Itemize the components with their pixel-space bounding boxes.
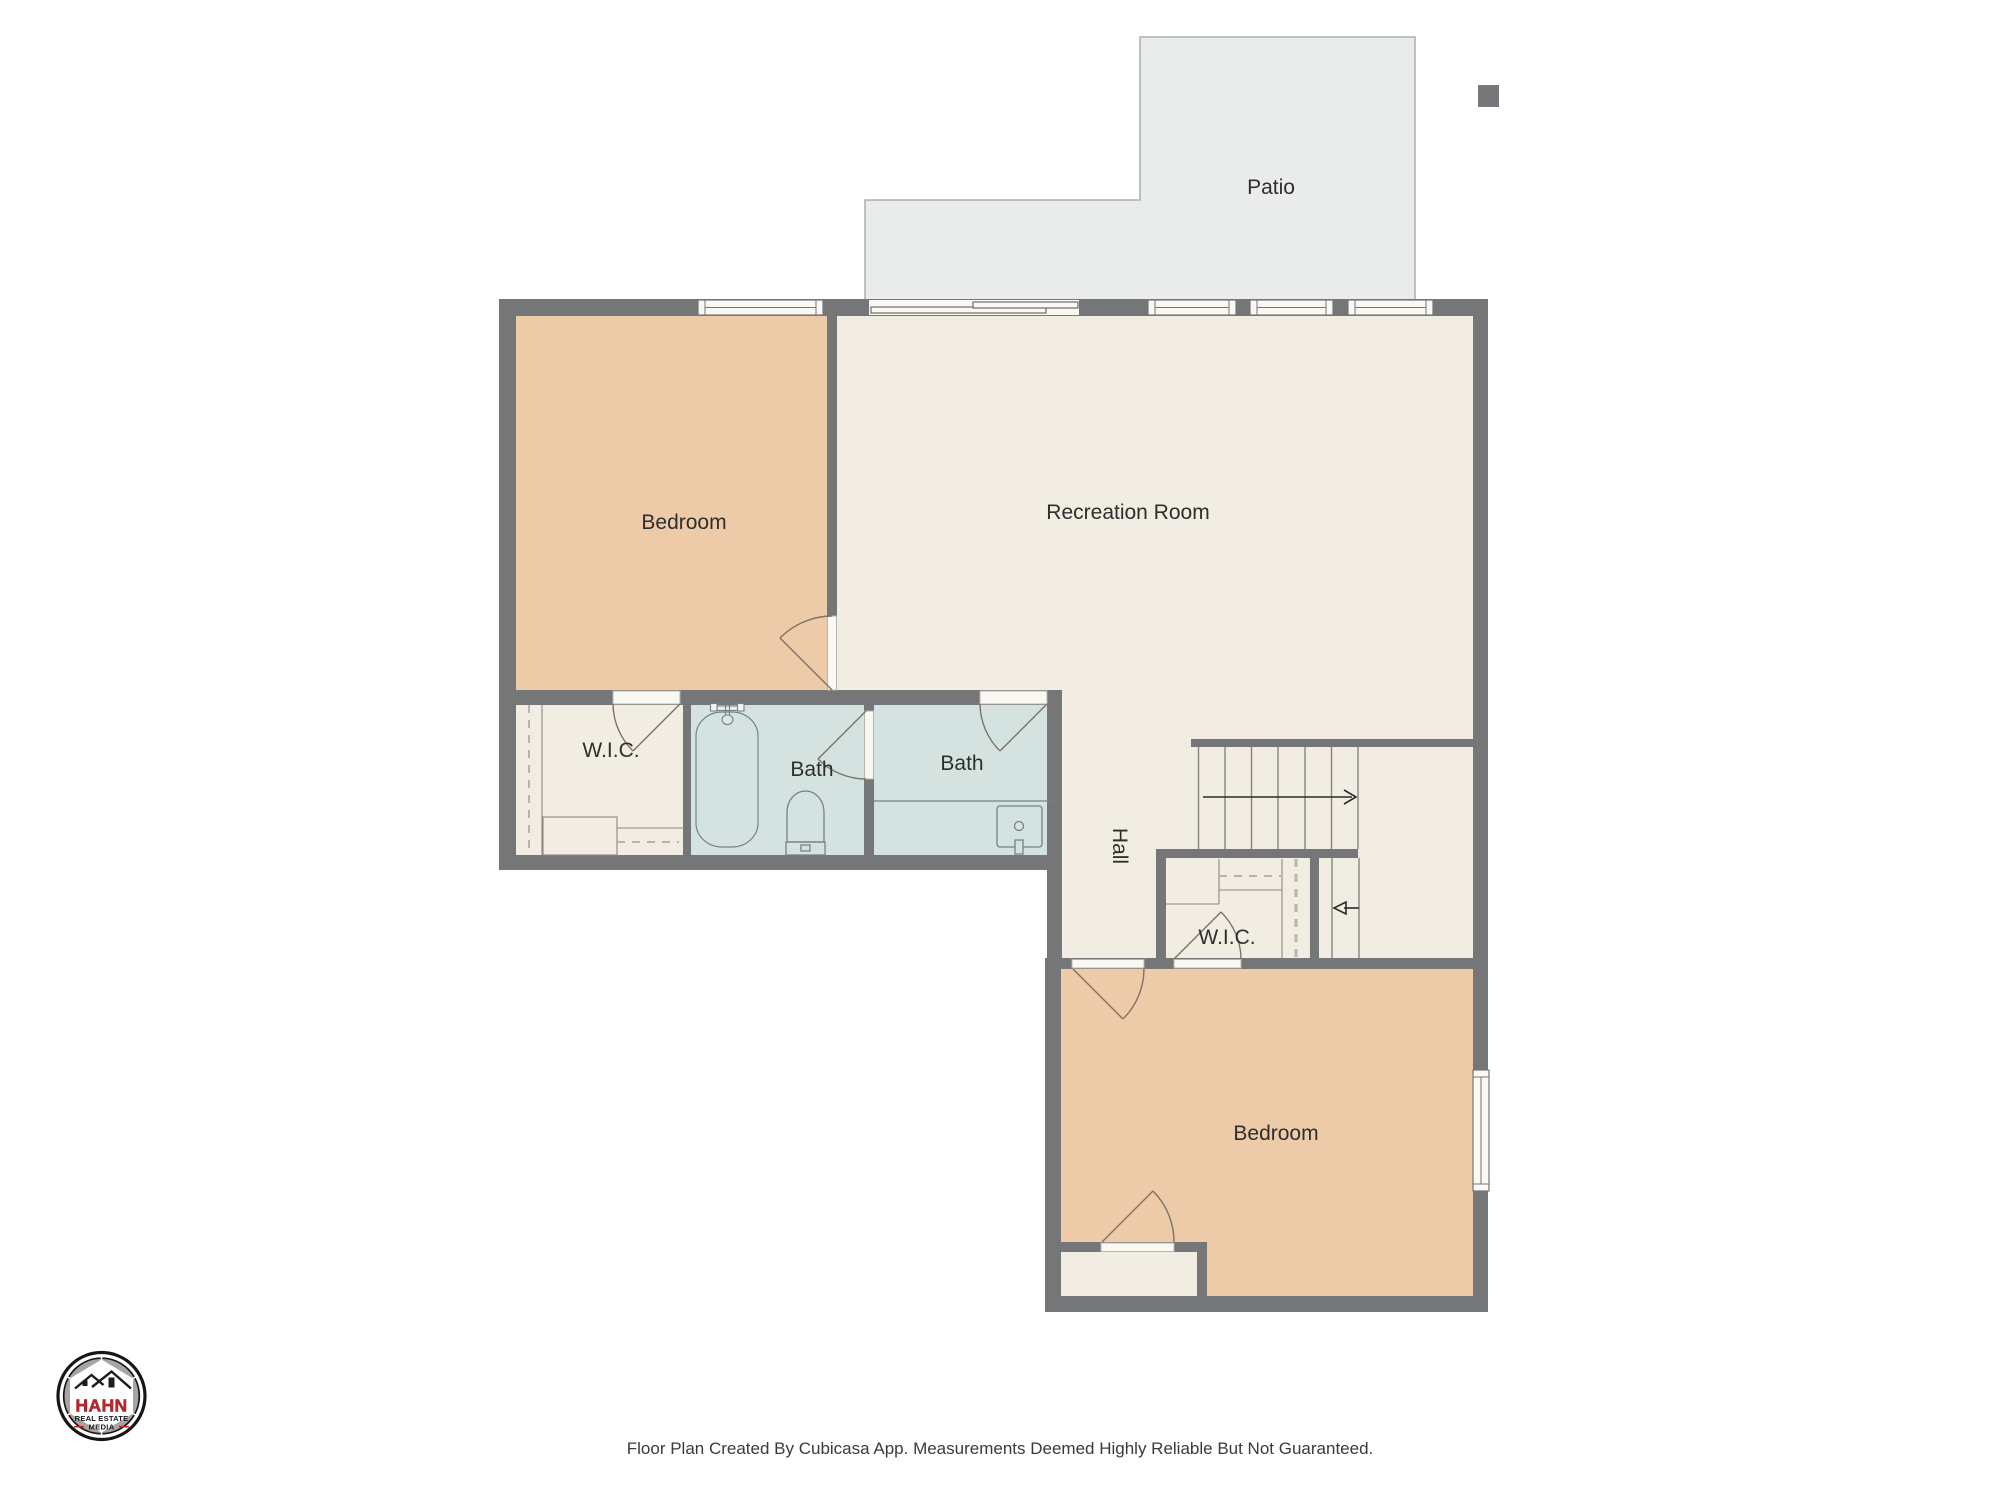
svg-text:MEDIA: MEDIA (89, 1423, 115, 1432)
svg-text:Bedroom: Bedroom (641, 511, 726, 534)
svg-text:Floor Plan Created By Cubicasa: Floor Plan Created By Cubicasa App. Meas… (627, 1439, 1374, 1458)
svg-text:Recreation Room: Recreation Room (1046, 501, 1209, 524)
svg-text:Bedroom: Bedroom (1233, 1122, 1318, 1145)
svg-text:Patio: Patio (1247, 176, 1295, 199)
svg-text:Bath: Bath (940, 752, 983, 775)
svg-text:HAHN: HAHN (75, 1396, 127, 1416)
svg-text:W.I.C.: W.I.C. (1198, 926, 1255, 949)
svg-text:Bath: Bath (790, 758, 833, 781)
svg-text:W.I.C.: W.I.C. (582, 739, 639, 762)
svg-text:Hall: Hall (1108, 828, 1131, 864)
